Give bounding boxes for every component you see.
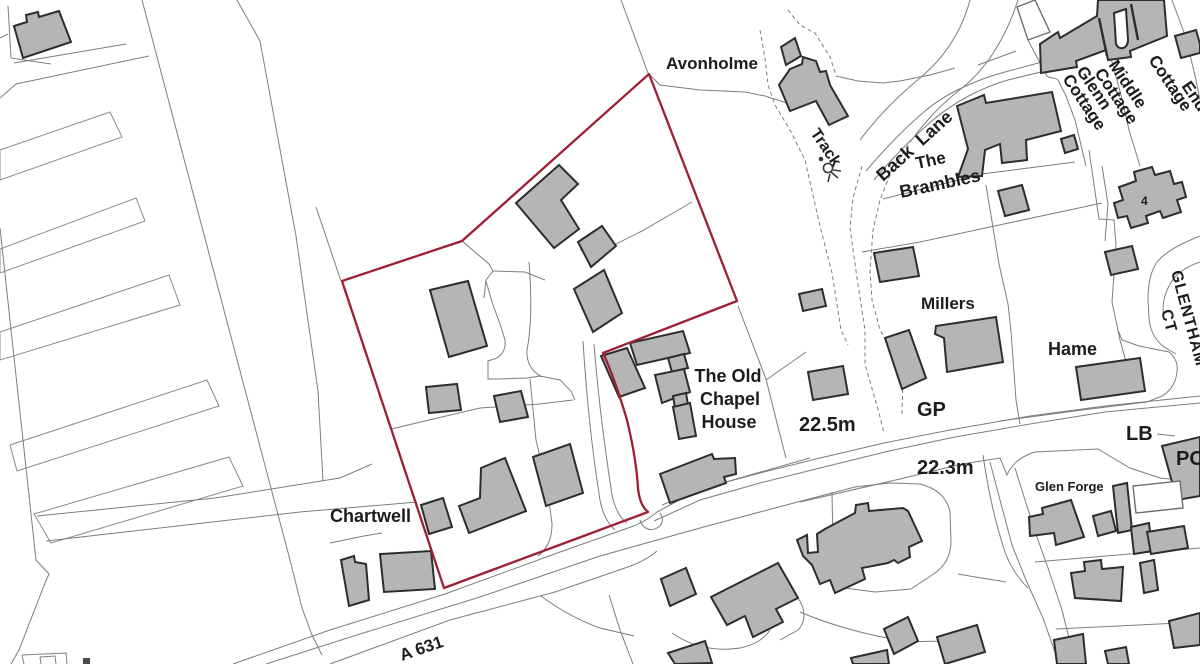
svg-text:The Old: The Old <box>695 366 762 386</box>
svg-text:Avonholme: Avonholme <box>666 54 758 73</box>
svg-text:Millers: Millers <box>921 294 975 313</box>
svg-text:Glen Forge: Glen Forge <box>1035 479 1104 494</box>
svg-text:Chartwell: Chartwell <box>330 506 411 526</box>
svg-text:22.3m: 22.3m <box>917 457 974 479</box>
svg-text:22.5m: 22.5m <box>799 414 856 436</box>
svg-text:GP: GP <box>917 399 946 421</box>
svg-text:House: House <box>701 412 756 432</box>
svg-text:4: 4 <box>1141 194 1148 208</box>
svg-text:Hame: Hame <box>1048 339 1097 359</box>
svg-text:Chapel: Chapel <box>700 389 760 409</box>
svg-text:LB: LB <box>1126 423 1153 445</box>
svg-text:PO: PO <box>1176 448 1200 470</box>
